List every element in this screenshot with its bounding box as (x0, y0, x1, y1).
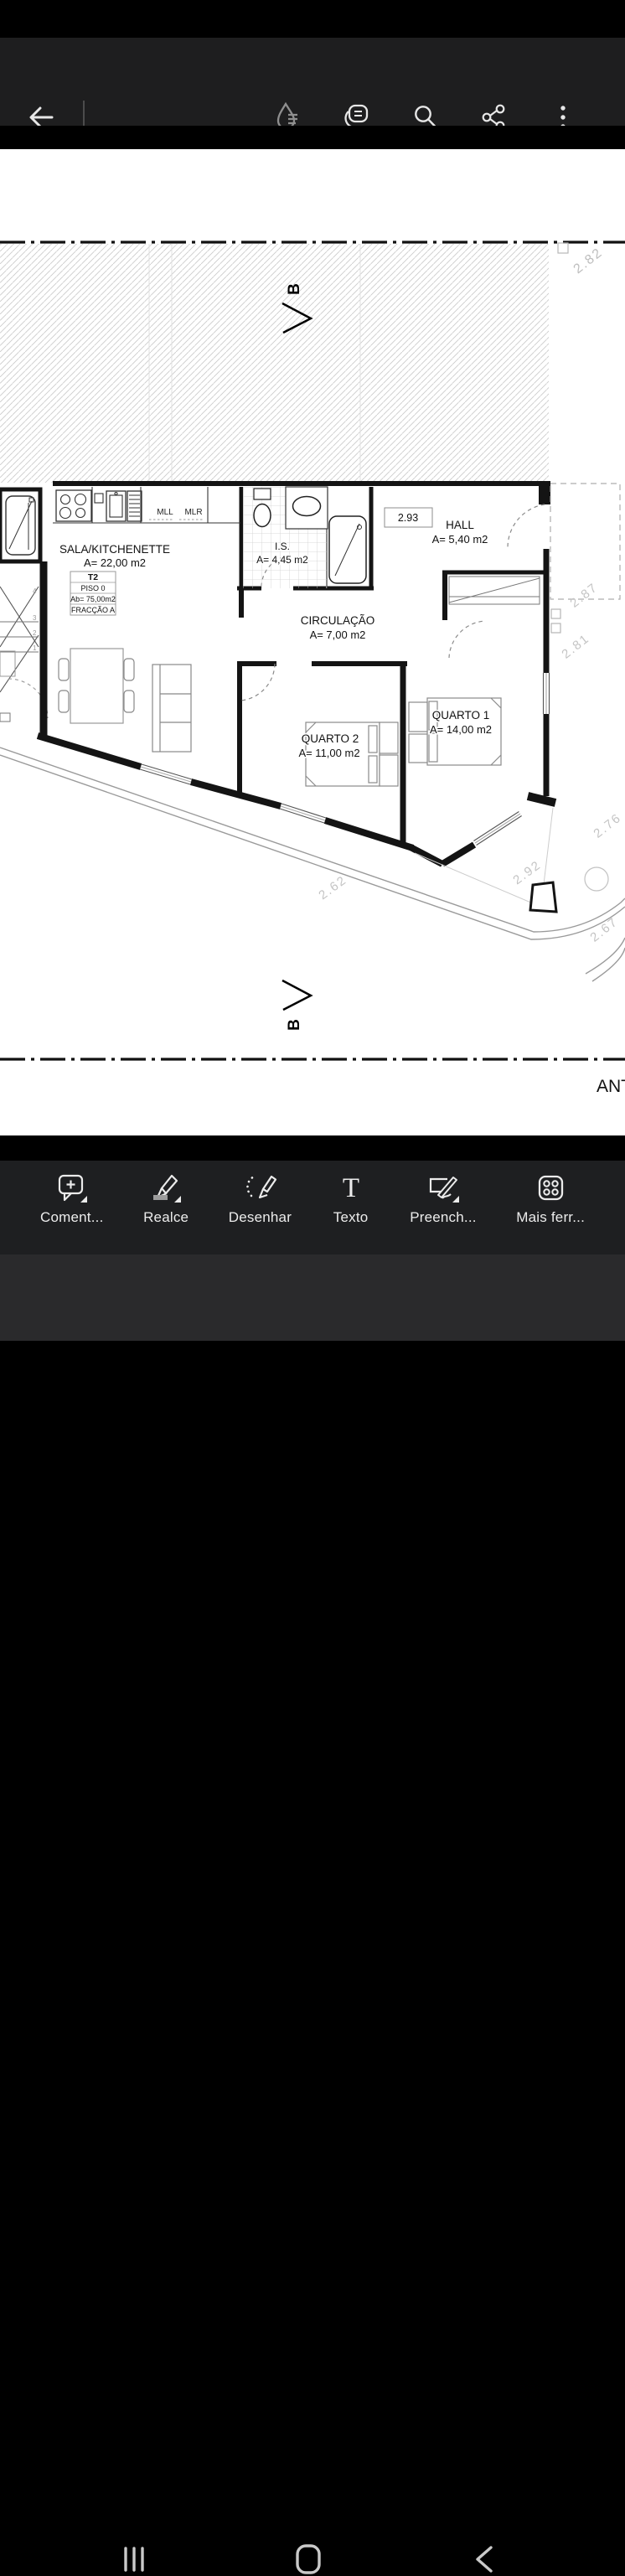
svg-text:2: 2 (33, 629, 37, 637)
svg-text:Ab= 75,00m2: Ab= 75,00m2 (70, 595, 116, 603)
sofa (152, 665, 191, 752)
kitchen-label-mlr: MLR (184, 508, 202, 517)
floor-plan-drawing: 2.82 B 4 3 2 1 (0, 149, 625, 1135)
svg-text:FRACÇÃO A: FRACÇÃO A (71, 606, 115, 614)
more-tools-grid-icon (531, 1171, 570, 1208)
dining-table (59, 649, 134, 723)
room-label-circ: CIRCULAÇÃO (301, 614, 375, 627)
svg-text:T: T (343, 1173, 359, 1203)
elevator (0, 489, 40, 561)
bottom-black-strip (0, 1135, 625, 1161)
top-black-strip (0, 126, 625, 149)
unit-info-box: T2 PISO 0 Ab= 75,00m2 FRACÇÃO A (70, 572, 116, 615)
tool-label: Mais ferr... (516, 1209, 585, 1226)
tool-label: Realce (143, 1209, 189, 1226)
kitchen-label-mll: MLL (157, 508, 173, 517)
svg-text:T2: T2 (88, 572, 98, 582)
tool-more-tools[interactable]: Mais ferr... (516, 1171, 585, 1226)
room-area-circ: A= 7,00 m2 (310, 628, 366, 641)
svg-text:PISO 0: PISO 0 (80, 584, 105, 592)
partial-document-text: ANTA (597, 1077, 625, 1096)
room-area-is: A= 4,45 m2 (256, 554, 308, 566)
text-tool-icon: T (332, 1171, 370, 1208)
comment-add-icon (53, 1171, 91, 1208)
home-icon[interactable] (283, 2542, 333, 2576)
dim-box-value: 2.93 (398, 512, 418, 524)
tool-label: Desenhar (229, 1209, 292, 1226)
tool-highlight[interactable]: Realce (143, 1171, 189, 1226)
room-area-q1: A= 14,00 m2 (430, 723, 492, 736)
tool-draw[interactable]: Desenhar (229, 1171, 292, 1226)
status-bar (0, 0, 625, 38)
room-label-q1: QUARTO 1 (432, 709, 490, 722)
room-area-q2: A= 11,00 m2 (298, 747, 359, 759)
room-label-hall: HALL (446, 519, 474, 531)
android-nav-bar (0, 1254, 625, 1341)
svg-text:3: 3 (33, 614, 37, 622)
tool-text[interactable]: T Texto (332, 1171, 370, 1226)
room-area-sala: A= 22,00 m2 (84, 556, 146, 569)
svg-text:B: B (286, 283, 303, 295)
tool-label: Texto (333, 1209, 369, 1226)
tool-fill-sign[interactable]: Preench... (410, 1171, 477, 1226)
highlighter-icon (147, 1171, 185, 1208)
room-label-is: I.S. (275, 541, 290, 552)
room-label-q2: QUARTO 2 (302, 732, 359, 745)
room-area-hall: A= 5,40 m2 (432, 533, 488, 546)
pencil-draw-icon (240, 1171, 279, 1208)
svg-text:1: 1 (33, 644, 37, 652)
tool-comment[interactable]: Coment... (40, 1171, 104, 1226)
recents-icon[interactable] (109, 2542, 159, 2576)
tool-label: Preench... (410, 1209, 477, 1226)
svg-text:B: B (286, 1019, 303, 1031)
fill-sign-icon (424, 1171, 462, 1208)
room-label-sala: SALA/KITCHENETTE (59, 543, 170, 556)
svg-text:4: 4 (33, 587, 37, 595)
tool-label: Coment... (40, 1209, 104, 1226)
hatched-zone (0, 244, 549, 483)
top-toolbar (0, 38, 625, 126)
pdf-document-canvas[interactable]: 2.82 B 4 3 2 1 (0, 149, 625, 1135)
annotation-toolbar: Coment... Realce Desenhar T Texto Pre (0, 1161, 625, 1254)
nav-back-icon[interactable] (461, 2542, 511, 2576)
